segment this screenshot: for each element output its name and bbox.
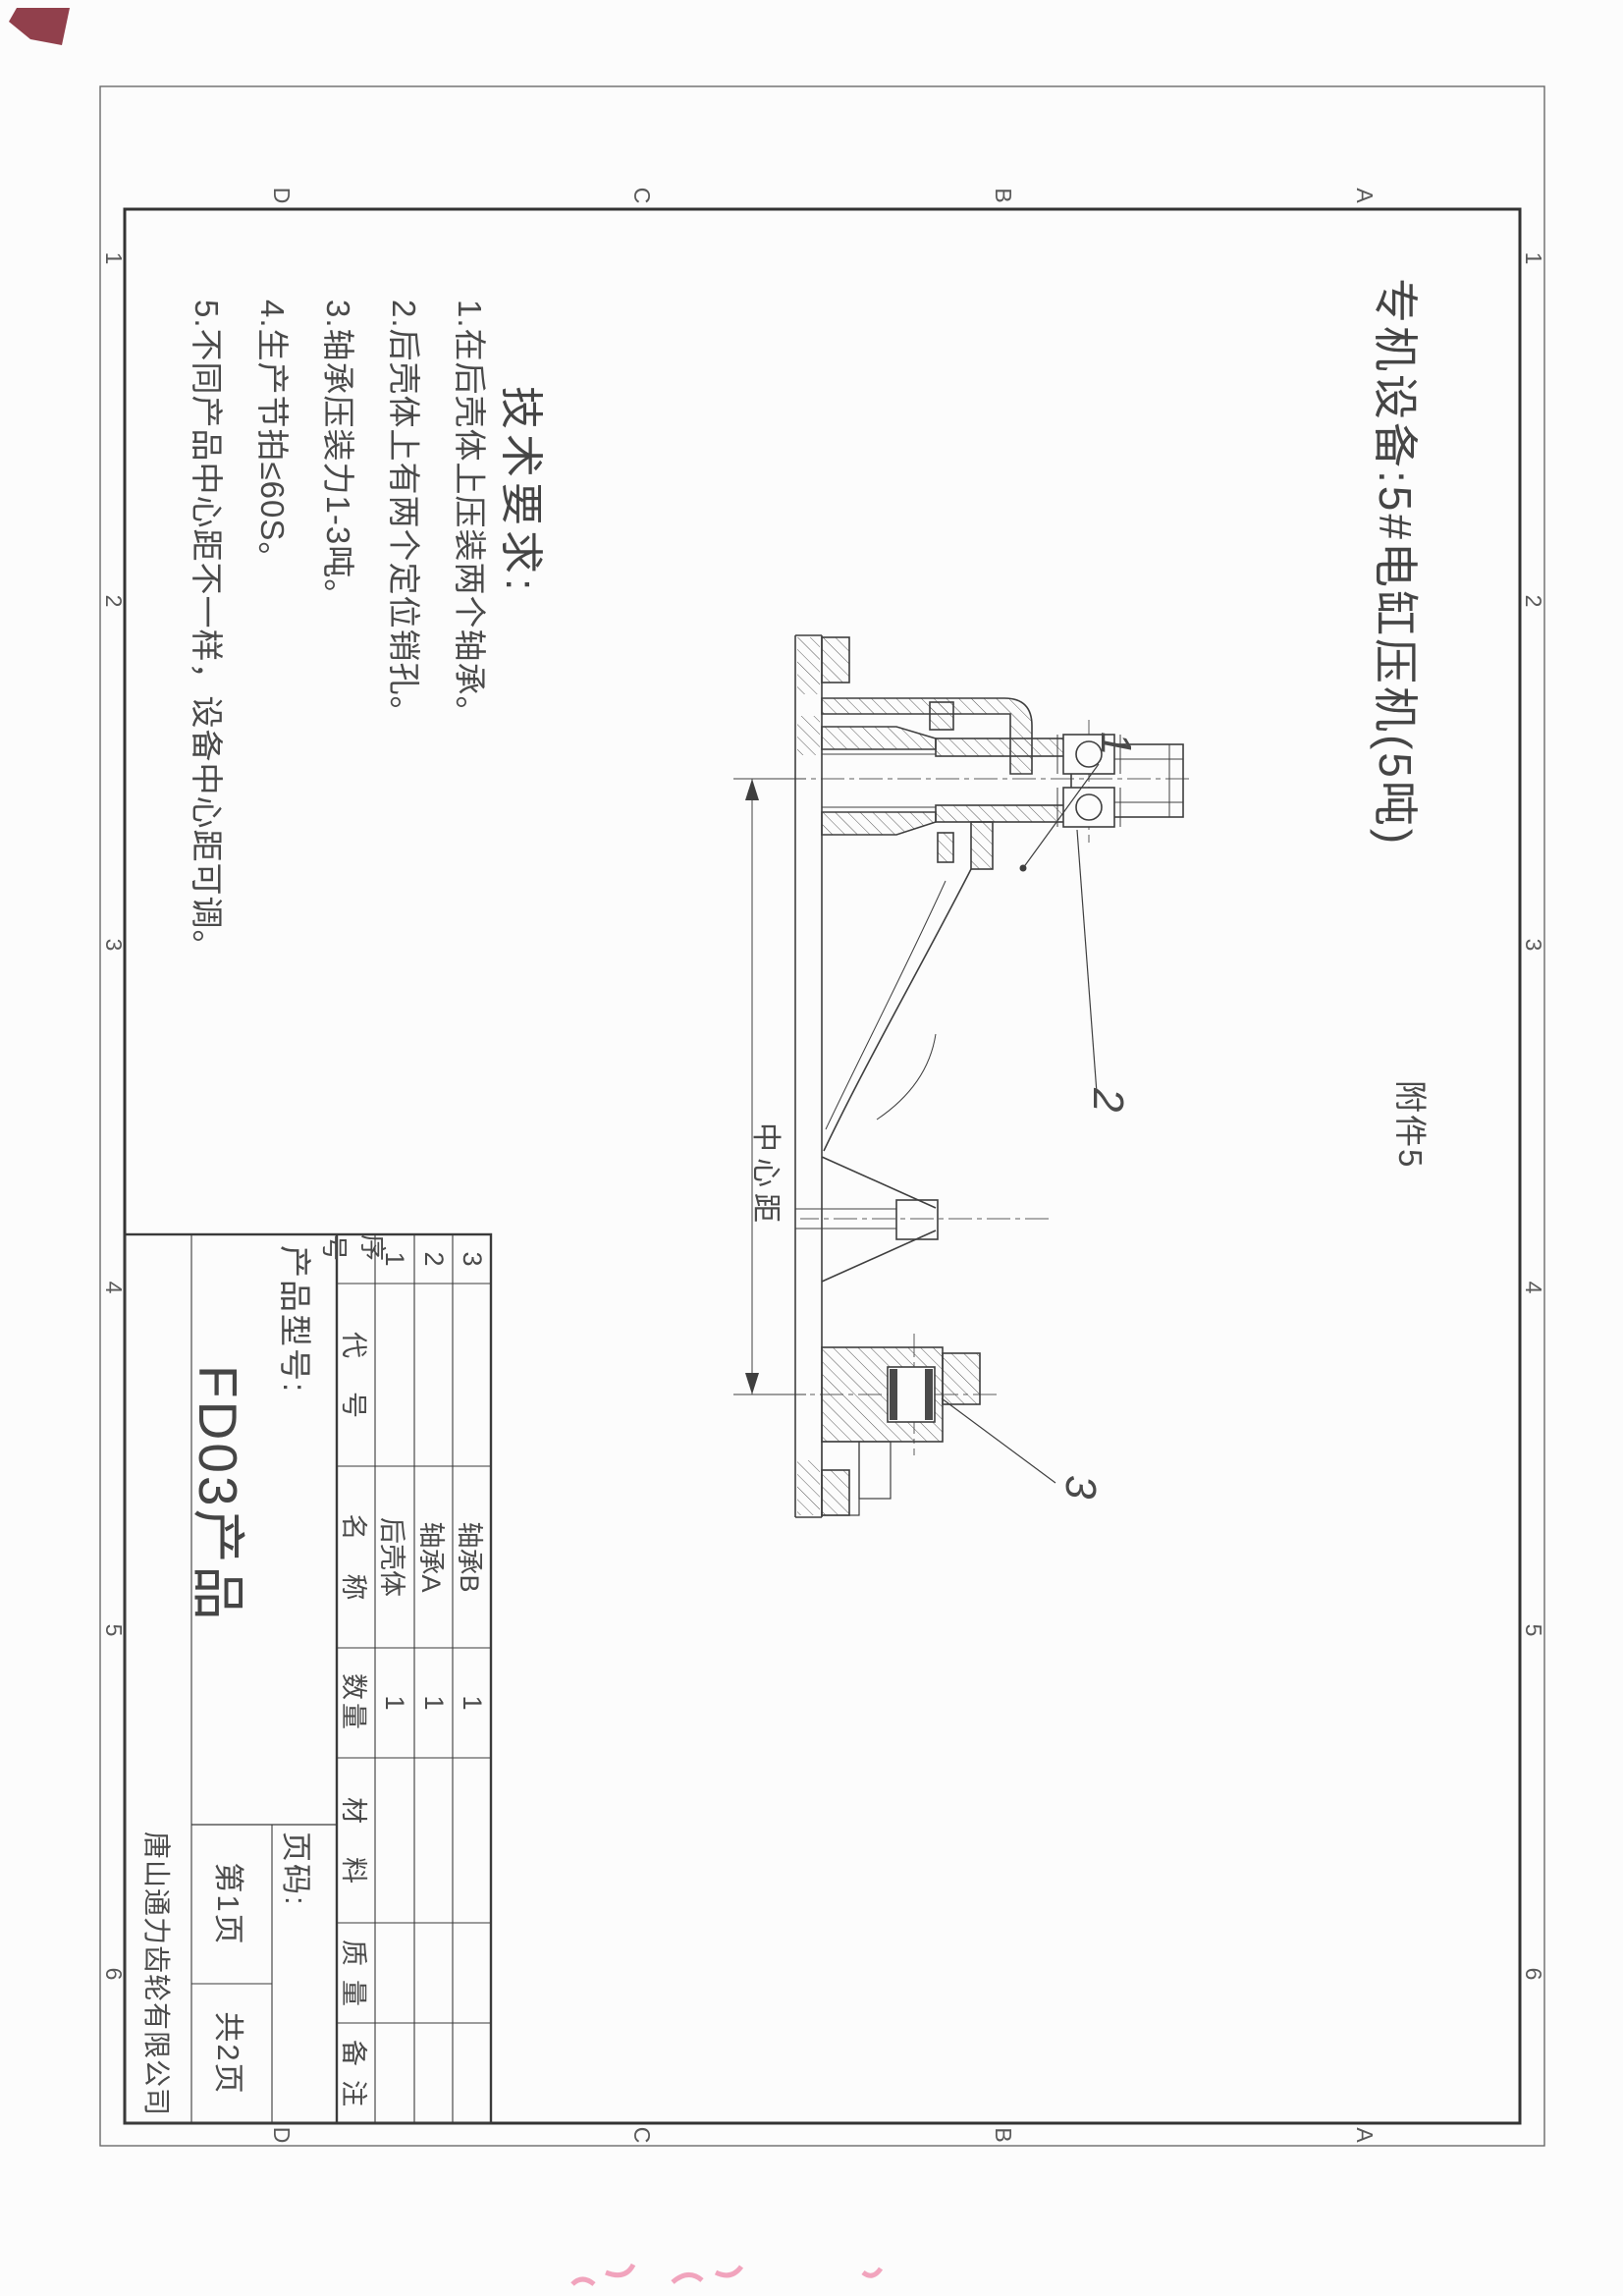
model-label: 产品型号:: [274, 1245, 321, 1394]
zone-bottom-3: 3: [100, 930, 127, 959]
zone-bottom-4: 4: [100, 1273, 127, 1302]
bom-row2-qty: 1: [414, 1648, 453, 1758]
bom-header-mass: 质量: [337, 1923, 375, 2023]
bom-row1-seq: 1: [375, 1234, 414, 1284]
bom-header-code: 代号: [337, 1284, 375, 1466]
zone-bottom-1: 1: [100, 244, 127, 273]
bom-header-notes: 备注: [337, 2023, 375, 2123]
page-current: 第1页: [191, 1825, 272, 1984]
zone-left-d: D: [268, 181, 295, 210]
page-label: 页码:: [277, 1831, 321, 1907]
bom-row3-seq: 3: [453, 1234, 491, 1284]
zone-top-1: 1: [1520, 244, 1546, 273]
bom-row2-name: 轴承A: [414, 1466, 453, 1648]
company-name: 唐山通力齿轮有限公司: [125, 1825, 191, 2123]
section-view: [731, 635, 1189, 1517]
zone-bottom-6: 6: [100, 1959, 127, 1989]
zone-bottom-5: 5: [100, 1615, 127, 1645]
tech-req-item-1: 1.在后壳体上压装两个轴承。: [449, 300, 496, 730]
bom-header-material: 材料: [337, 1758, 375, 1923]
page-total: 共2页: [191, 1984, 272, 2123]
sheet-title: 专机设备:5#电缸压机(5吨): [1366, 278, 1431, 847]
scanned-drawing-page: { "header": { "title": "专机设备:5#电缸压机(5吨)"…: [0, 0, 1623, 2296]
bom-row3-name: 轴承B: [453, 1466, 491, 1648]
dimension-label: 中心距: [747, 1122, 790, 1229]
bom-header-seq: 序号: [337, 1234, 375, 1284]
bom-row1-name: 后壳体: [375, 1466, 414, 1648]
bom-header-qty: 数量: [337, 1648, 375, 1758]
zone-right-b: B: [990, 2120, 1016, 2150]
callout-3: 3: [1055, 1475, 1105, 1499]
zone-left-a: A: [1351, 181, 1378, 210]
zone-top-4: 4: [1520, 1273, 1546, 1302]
callout-2: 2: [1083, 1088, 1132, 1112]
zone-top-2: 2: [1520, 586, 1546, 616]
tech-req-item-4: 4.生产节拍≤60S。: [251, 300, 298, 574]
zone-right-a: A: [1351, 2120, 1378, 2150]
zone-top-3: 3: [1520, 930, 1546, 959]
zone-right-c: C: [628, 2120, 655, 2150]
attachment-label: 附件5: [1389, 1080, 1436, 1169]
zone-left-b: B: [990, 181, 1016, 210]
callout-1: 1: [1091, 732, 1140, 755]
tech-req-item-3: 3.轴承压装力1-3吨。: [317, 300, 364, 612]
bom-row1-qty: 1: [375, 1648, 414, 1758]
zone-top-5: 5: [1520, 1615, 1546, 1645]
tech-req-heading: 技术要求:: [494, 386, 557, 595]
bom-row2-seq: 2: [414, 1234, 453, 1284]
bom-header-name: 名称: [337, 1466, 375, 1648]
zone-left-c: C: [628, 181, 655, 210]
tech-req-item-5: 5.不同产品中心距不一样，设备中心距可调。: [186, 300, 233, 963]
zone-top-6: 6: [1520, 1959, 1546, 1989]
model-value: FD03产品: [184, 1365, 262, 1623]
zone-bottom-2: 2: [100, 586, 127, 616]
zone-right-d: D: [268, 2120, 295, 2150]
bom-row3-qty: 1: [453, 1648, 491, 1758]
drawing-sheet: 专机设备:5#电缸压机(5吨) 附件5 技术要求: 1.在后壳体上压装两个轴承。…: [0, 0, 1623, 2296]
tech-req-item-2: 2.后壳体上有两个定位销孔。: [383, 300, 430, 730]
